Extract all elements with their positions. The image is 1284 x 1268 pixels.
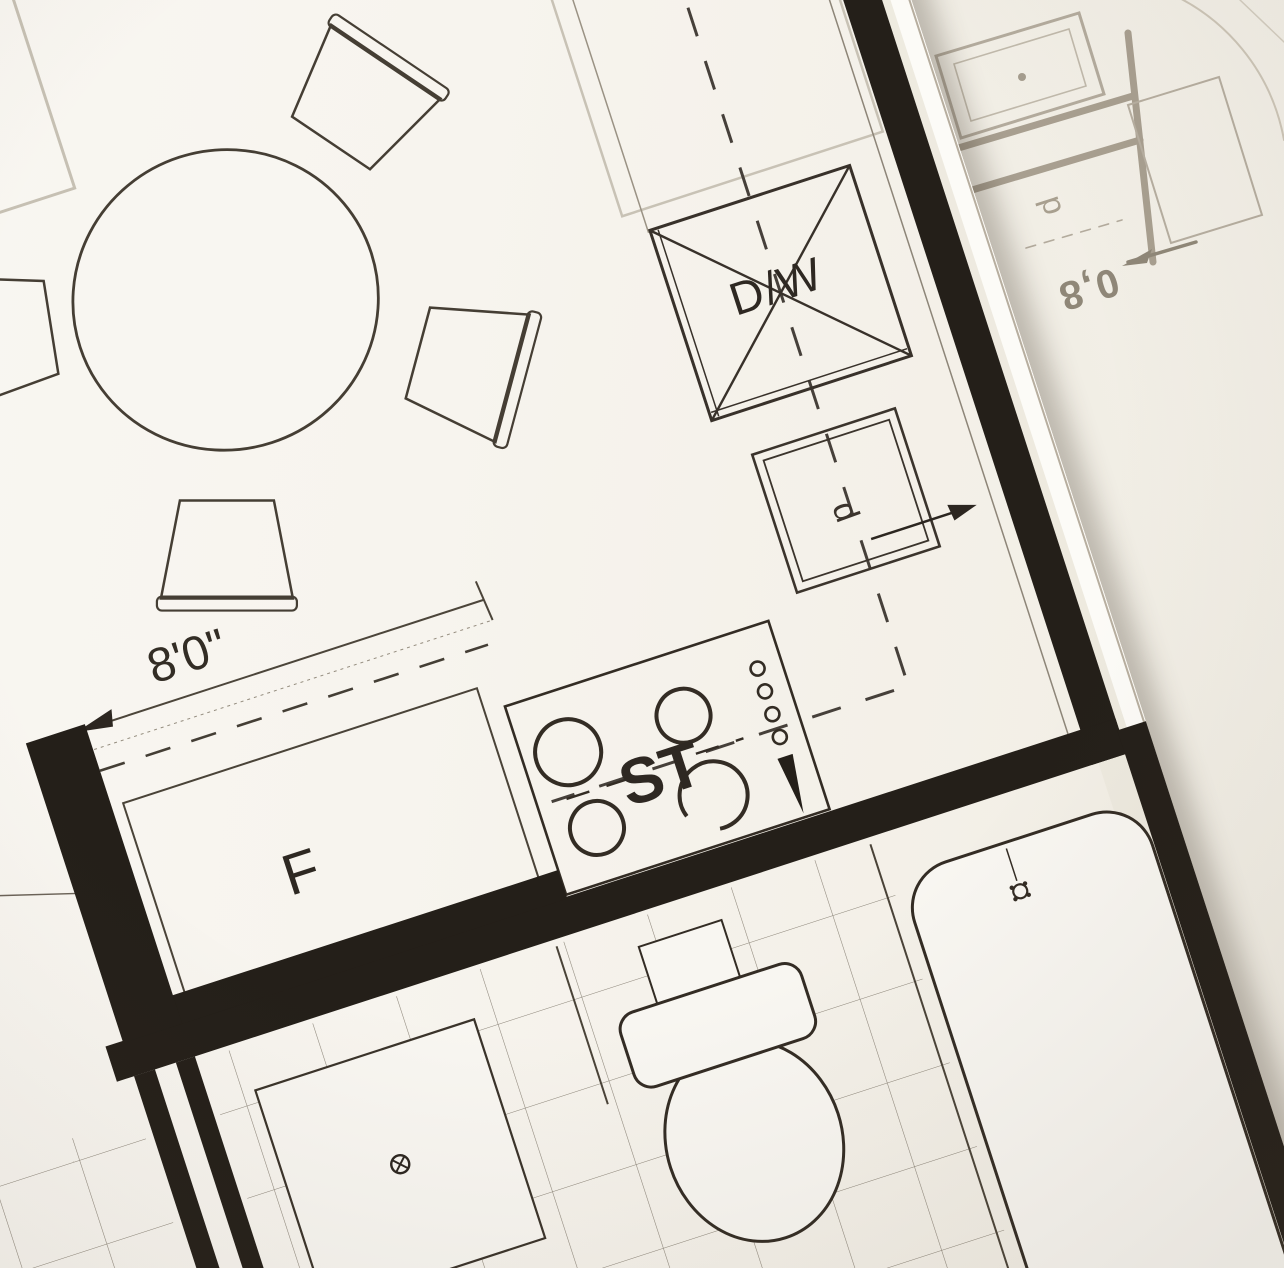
sideboard-outline (0, 0, 75, 378)
down-arrow (777, 754, 811, 816)
burner (563, 794, 631, 862)
under-dimension: 0,8 (1052, 242, 1196, 319)
dimension-8ft-label: 8'0" (141, 619, 233, 694)
chair (157, 501, 297, 611)
chair (0, 258, 62, 413)
dishwasher-label: D/W (723, 247, 830, 326)
chair (273, 13, 451, 182)
under-cabinet-label: d (1029, 192, 1069, 220)
burner (527, 711, 610, 794)
fridge-label: F (274, 836, 328, 909)
counter-outline (487, 0, 883, 216)
right-arrow (868, 496, 979, 546)
chair (400, 285, 542, 449)
under-dimension-label: 0,8 (1052, 259, 1124, 319)
under-sheet-corner (1240, 0, 1284, 42)
stove-knobs (749, 660, 789, 746)
left-wall-stub (26, 724, 182, 1043)
dining-set (0, 0, 606, 693)
under-dash-line (1026, 220, 1122, 248)
blueprint-photo: d 0,8 (0, 0, 1284, 1268)
dining-table (34, 110, 418, 490)
cabinet-label: d (824, 496, 866, 527)
door-swing-arc (1162, 0, 1284, 140)
counter-front-line (490, 0, 648, 233)
under-cabinet-symbol (936, 13, 1104, 138)
center-dashline (245, 0, 909, 802)
